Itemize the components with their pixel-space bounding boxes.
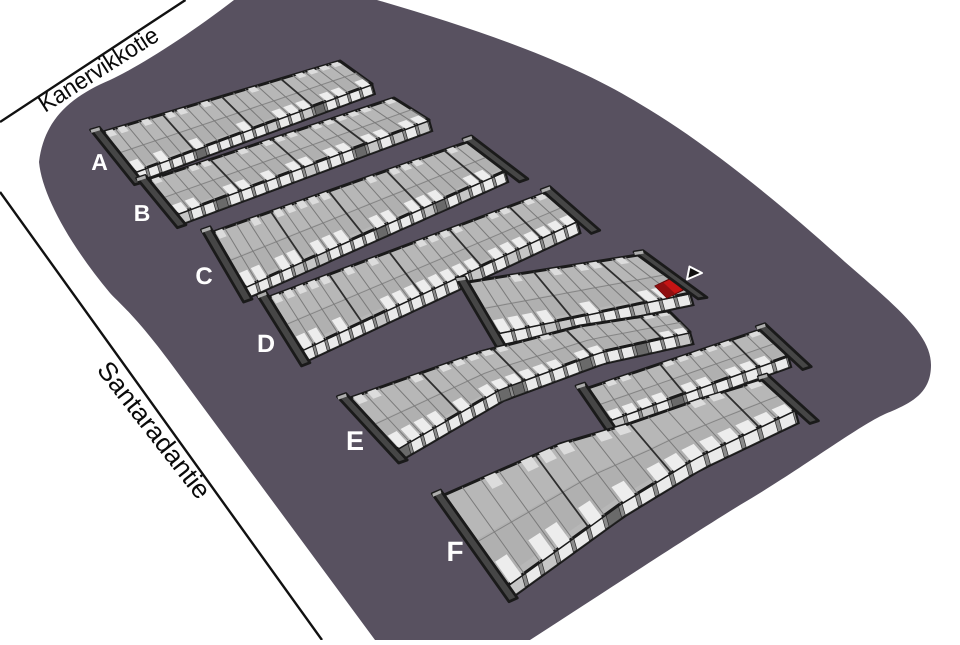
svg-text:B: B [134, 200, 151, 226]
svg-text:E: E [346, 426, 364, 456]
svg-text:F: F [446, 536, 463, 567]
svg-text:A: A [91, 149, 108, 175]
svg-text:D: D [257, 330, 275, 358]
svg-text:C: C [195, 263, 212, 290]
